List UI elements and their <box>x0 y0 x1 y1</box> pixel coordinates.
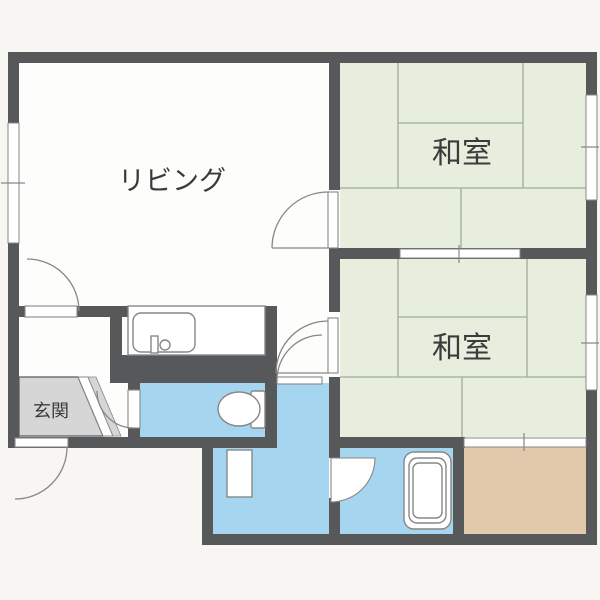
wall-center-bottom <box>329 498 340 537</box>
japanese-room-top-label: 和室 <box>432 137 492 170</box>
wall-bottom-lower <box>202 534 597 545</box>
wall-japanese-bottom <box>329 437 465 448</box>
wall-below-counter <box>122 355 277 383</box>
wall-bath-veranda <box>453 437 464 534</box>
door-leaf-toilet <box>128 390 140 428</box>
door-leaf-japanese-top <box>328 192 338 248</box>
bathtub-inner <box>413 463 442 518</box>
japanese-room-bottom-label: 和室 <box>432 332 492 365</box>
washroom-upper-floor <box>277 383 329 448</box>
door-leaf-japanese-bottom <box>328 318 338 373</box>
wall-center-upper <box>329 52 340 190</box>
sliding-window-veranda <box>464 438 586 447</box>
kitchen-faucet <box>151 336 158 353</box>
sliding-door-between-rooms <box>400 249 520 258</box>
door-leaf-entrance <box>15 438 68 447</box>
wall-washroom-left <box>202 437 213 545</box>
wall-toilet-right <box>265 306 277 448</box>
entrance-label: 玄関 <box>33 401 69 421</box>
veranda-floor <box>464 447 586 534</box>
door-leaf-washroom <box>277 377 322 384</box>
wall-top <box>8 52 597 63</box>
floor-plan-canvas: リビング 和室 和室 玄関 <box>0 0 600 600</box>
toilet-bowl <box>218 392 260 426</box>
floor-plan: リビング 和室 和室 玄関 <box>0 0 600 600</box>
living-room-label: リビング <box>118 166 226 196</box>
wall-kitchen-left <box>110 306 122 383</box>
wall-left <box>8 52 19 448</box>
door-arc-entrance <box>15 447 67 499</box>
vanity-basin <box>227 450 252 497</box>
kitchen-drain <box>160 340 170 350</box>
door-leaf-living <box>25 306 77 317</box>
